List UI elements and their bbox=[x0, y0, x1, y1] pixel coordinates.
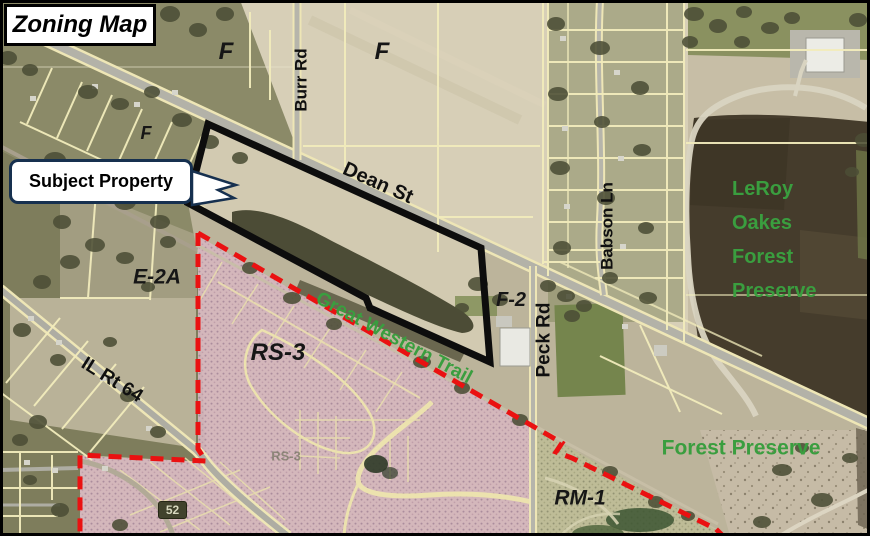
zone-label-f-north: F bbox=[375, 40, 390, 64]
route-52-marker: 52 bbox=[158, 501, 187, 519]
callout-tail bbox=[190, 166, 240, 208]
leroy-line-3: Forest bbox=[732, 240, 817, 274]
zone-label-f-west: F bbox=[141, 124, 152, 142]
f2-parcel-building bbox=[500, 328, 530, 366]
zone-label-rs3-faded: RS-3 bbox=[271, 450, 301, 463]
road-label-babson-ln: Babson Ln bbox=[599, 182, 616, 270]
area-label-forest-preserve: Forest Preserve bbox=[662, 438, 821, 459]
zone-label-rm1: RM-1 bbox=[554, 488, 605, 509]
road-label-burr-rd: Burr Rd bbox=[293, 48, 310, 111]
road-label-peck-rd: Peck Rd bbox=[535, 303, 554, 378]
zone-label-f-northwest: F bbox=[219, 40, 234, 64]
map-title: Zoning Map bbox=[4, 4, 156, 46]
zone-label-e2a: E-2A bbox=[133, 267, 181, 288]
zone-label-f2: F-2 bbox=[496, 290, 526, 310]
zoning-map-figure: F F F Burr Rd Dean St Babson Ln Peck Rd … bbox=[0, 0, 870, 536]
zone-label-rs3: RS-3 bbox=[251, 341, 306, 365]
leroy-line-1: LeRoy bbox=[732, 172, 817, 206]
subject-property-callout: Subject Property bbox=[9, 159, 193, 204]
leroy-line-4: Preserve bbox=[732, 274, 817, 308]
leroy-line-2: Oakes bbox=[732, 206, 817, 240]
area-label-leroy-oakes: LeRoy Oakes Forest Preserve bbox=[732, 172, 817, 308]
